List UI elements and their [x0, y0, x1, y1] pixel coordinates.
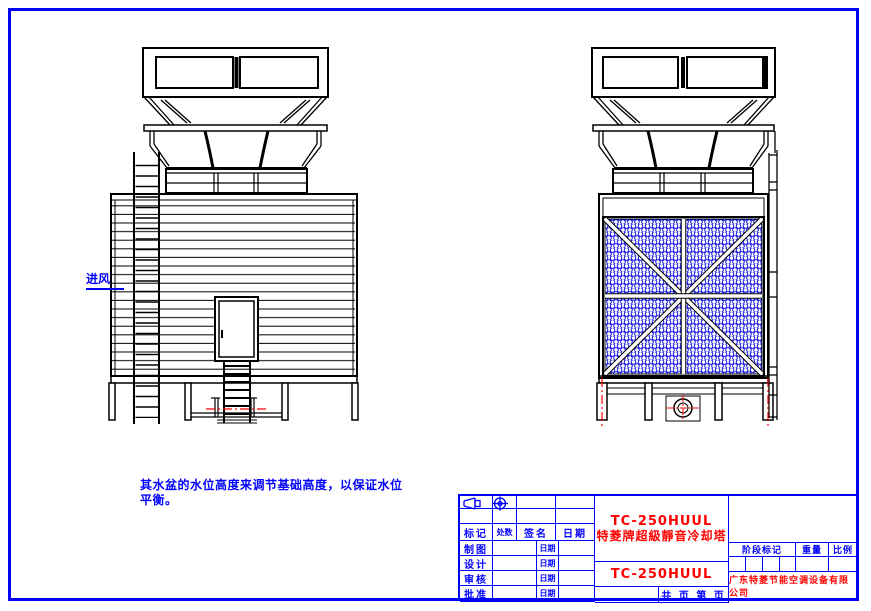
- blank-cell: [460, 509, 493, 524]
- date-label: 日期: [537, 556, 559, 571]
- blank-cell: [493, 509, 517, 524]
- revision-table: 标记 处数 签名 日期 制图 日期 设计 日期 审核 日期: [460, 496, 595, 600]
- company-name: 广东特菱节能空调设备有限公司: [729, 572, 858, 600]
- date-cell: [559, 586, 595, 602]
- sign-row-drafter: 制图 日期: [460, 541, 595, 556]
- drawing-sheet: 进风 其水盆的水位高度来调节基础高度，以保证水位 平衡。 标记 处数 签名: [0, 0, 871, 611]
- weight-label: 重量: [796, 543, 829, 557]
- role-label: 设计: [460, 556, 493, 571]
- date-cell: [559, 556, 595, 571]
- fan-stack-transition: [599, 131, 768, 168]
- signature-cell: [493, 571, 537, 586]
- rev-header-signature: 签名: [517, 524, 556, 541]
- basin-note-line1: 其水盆的水位高度来调节基础高度，以保证水位: [140, 478, 403, 493]
- fan-housing-window: [156, 57, 233, 88]
- sign-row-checker: 审核 日期: [460, 571, 595, 586]
- fan-deck-hopper: [593, 97, 774, 131]
- fan-deck-hopper: [144, 97, 327, 131]
- drain-connection: [666, 395, 700, 421]
- inspection-door: [215, 297, 258, 361]
- role-label: 批准: [460, 586, 493, 602]
- product-model-cell: TC-250HUUL: [595, 562, 729, 587]
- product-section: TC-250HUUL 特菱牌超級靜音冷却塔 TC-250HUUL: [595, 496, 729, 600]
- date-label: 日期: [537, 586, 559, 602]
- date-label: 日期: [537, 541, 559, 556]
- fan-housing-window: [240, 57, 318, 88]
- role-label: 制图: [460, 541, 493, 556]
- stage-sub-cell: [763, 557, 780, 572]
- scale-value-cell: [829, 557, 858, 572]
- mesh-cross-braces: [605, 219, 762, 374]
- sign-row-approver: 批准 日期: [460, 586, 595, 602]
- date-cell: [559, 541, 595, 556]
- inlet-mesh-panel: [603, 217, 764, 376]
- weight-value-cell: [796, 557, 829, 572]
- fan-housing-window: [603, 57, 678, 88]
- stage-sub-cell: [746, 557, 763, 572]
- stage-value-row: [729, 557, 858, 572]
- projection-row: 共 页 第 页: [595, 587, 729, 603]
- blank-cell: [556, 509, 595, 524]
- rev-header-date: 日期: [556, 524, 595, 541]
- stage-sub-cell: [729, 557, 746, 572]
- rev-header-mark: 标记: [460, 524, 493, 541]
- signature-cell: [493, 586, 537, 602]
- stage-mark-label: 阶段标记: [729, 543, 796, 557]
- date-label: 日期: [537, 571, 559, 586]
- date-cell: [559, 571, 595, 586]
- revision-header-row: 标记 处数 签名 日期: [460, 524, 595, 541]
- projection-symbol-cell: [595, 587, 659, 603]
- signature-cell: [493, 556, 537, 571]
- signature-cell: [493, 541, 537, 556]
- rev-header-count: 处数: [493, 524, 517, 541]
- stage-header-row: 阶段标记 重量 比例: [729, 543, 858, 557]
- sign-row-designer: 设计 日期: [460, 556, 595, 571]
- revision-blank-row: [460, 509, 595, 524]
- side-elevation-view: [592, 48, 777, 428]
- fan-housing-window: [687, 57, 767, 88]
- product-model: TC-250HUUL: [611, 514, 713, 529]
- product-name-cell: TC-250HUUL 特菱牌超級靜音冷却塔: [595, 496, 729, 562]
- product-name: 特菱牌超級靜音冷却塔: [596, 529, 726, 544]
- leg-ties: [607, 388, 763, 394]
- stage-sub-cell: [780, 557, 796, 572]
- fan-housing: [143, 48, 328, 97]
- blank-cell: [517, 496, 556, 509]
- fan-stack-transition: [150, 131, 321, 168]
- cage-ladder: [769, 131, 777, 420]
- title-block: 标记 处数 签名 日期 制图 日期 设计 日期 审核 日期: [458, 494, 858, 600]
- fan-housing: [592, 48, 775, 97]
- role-label: 审核: [460, 571, 493, 586]
- front-elevation-view: [109, 48, 358, 424]
- blank-cell: [556, 496, 595, 509]
- drawing-number-cell: [729, 496, 858, 543]
- access-ladder: [134, 152, 159, 424]
- upper-panel-band: [613, 169, 753, 193]
- air-inlet-label: 进风: [86, 270, 124, 290]
- stage-section: 阶段标记 重量 比例 广东特菱节能空调设备有限公司: [729, 496, 858, 600]
- page-info-cell: 共 页 第 页: [659, 587, 729, 603]
- basin-note: 其水盆的水位高度来调节基础高度，以保证水位 平衡。: [140, 478, 403, 508]
- scale-label: 比例: [829, 543, 858, 557]
- upper-panel-band: [166, 169, 307, 193]
- blank-cell: [517, 509, 556, 524]
- basin-note-line2: 平衡。: [140, 493, 403, 508]
